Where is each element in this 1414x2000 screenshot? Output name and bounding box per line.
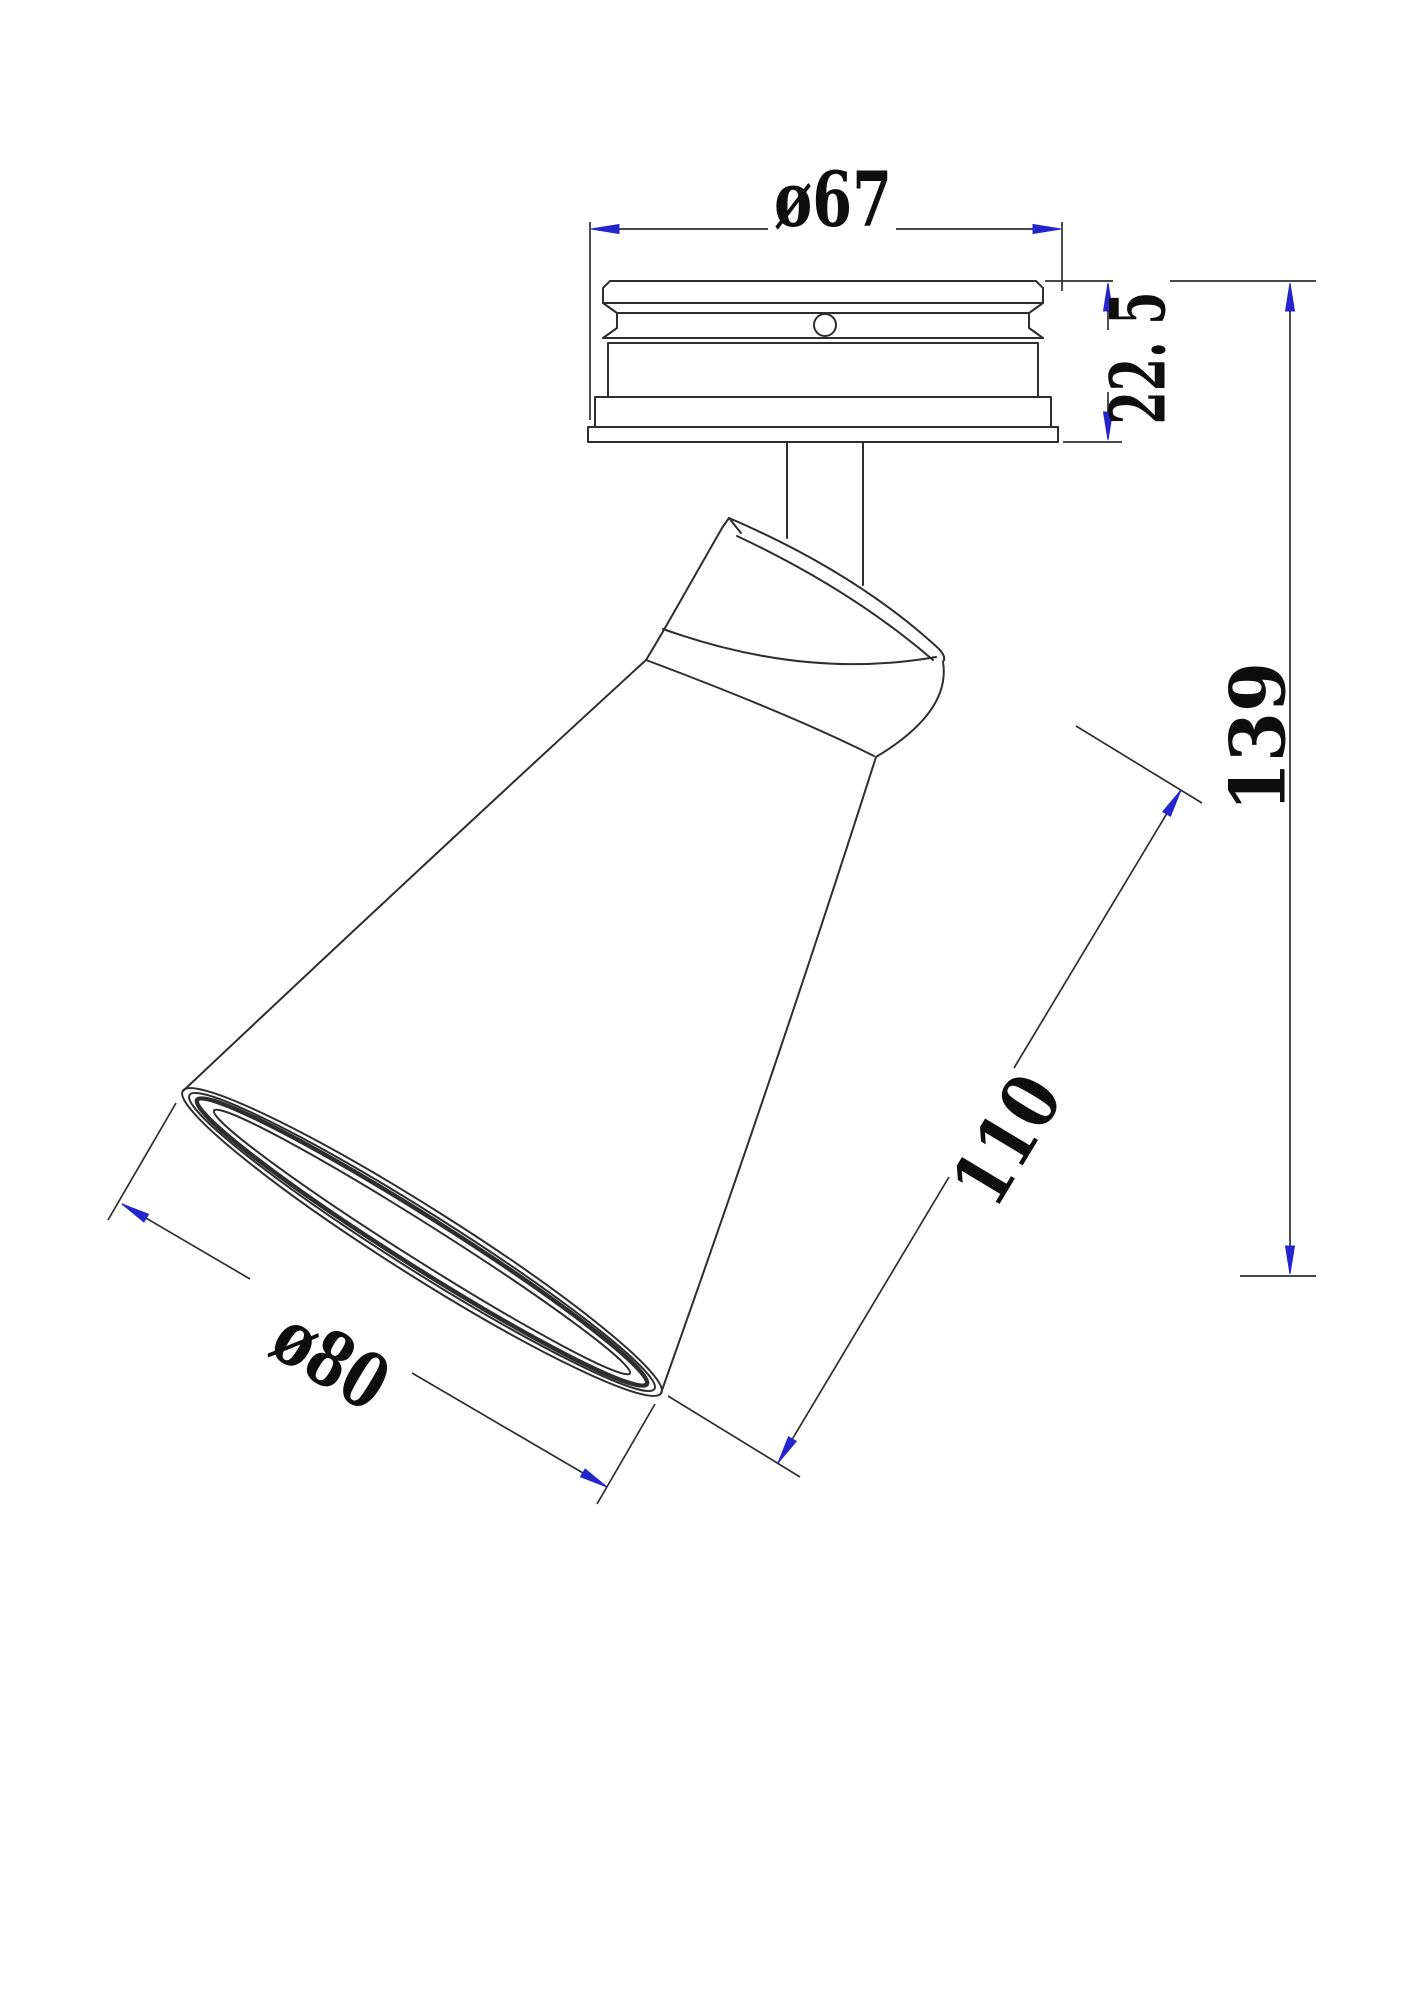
dim-arrowhead-icon — [1286, 1246, 1295, 1274]
ext-line — [108, 1103, 176, 1220]
dim-label-head-length: 110 — [934, 1059, 1080, 1221]
canopy-front-view — [588, 281, 1058, 442]
shade-rim-inner — [204, 1095, 639, 1388]
dim-overall-height: 139 — [1214, 283, 1317, 1276]
dim-line — [778, 1177, 949, 1463]
neck-notch — [722, 518, 741, 533]
dim-canopy-diameter: ø67 — [590, 155, 1062, 420]
dim-label-canopy-height: 22. 5 — [1094, 292, 1183, 425]
head-right-silhouette — [661, 662, 944, 1393]
canopy-left-bevel — [603, 303, 617, 338]
ext-line — [668, 1396, 800, 1477]
dim-arrowhead-icon — [1033, 225, 1061, 234]
ext-line — [597, 1404, 655, 1504]
canopy-flange — [595, 397, 1051, 427]
drawing-page: ø67 22. 5 139 1 — [0, 0, 1414, 2000]
mounting-stem — [787, 442, 863, 585]
dim-head-length: 110 — [668, 726, 1202, 1477]
shade-rim-heavy — [184, 1079, 660, 1406]
dim-arrowhead-icon — [1286, 283, 1295, 311]
dim-arrowhead-icon — [1163, 790, 1181, 816]
shade-rim-outer — [165, 1062, 680, 1422]
dim-arrowhead-icon — [778, 1437, 796, 1463]
technical-drawing-canvas: ø67 22. 5 139 1 — [0, 0, 1414, 2000]
canopy-screw-hole — [814, 314, 836, 336]
head-band-upper-line — [663, 629, 936, 664]
dim-canopy-height: 22. 5 — [1045, 281, 1316, 442]
spot-head — [165, 518, 945, 1422]
dim-label-overall-height: 139 — [1214, 662, 1303, 812]
dim-line — [1014, 790, 1181, 1068]
dim-line — [412, 1373, 607, 1487]
dim-label-canopy-diameter: ø67 — [774, 155, 892, 244]
neck-rim-inner — [737, 536, 933, 660]
dim-label-shade-diameter: ø80 — [258, 1291, 405, 1428]
canopy-top-band — [603, 281, 1043, 303]
canopy-right-bevel — [1029, 303, 1043, 338]
canopy-lower-band — [608, 343, 1038, 397]
dim-arrowhead-icon — [591, 225, 619, 234]
canopy-base-plate — [588, 427, 1058, 442]
ext-line — [1076, 726, 1202, 803]
dim-arrowhead-icon — [581, 1469, 608, 1487]
head-band-lower-line — [646, 660, 874, 756]
head-left-silhouette — [183, 528, 722, 1091]
dim-arrowhead-icon — [122, 1204, 149, 1222]
shade-opening-ellipse — [165, 1062, 680, 1422]
